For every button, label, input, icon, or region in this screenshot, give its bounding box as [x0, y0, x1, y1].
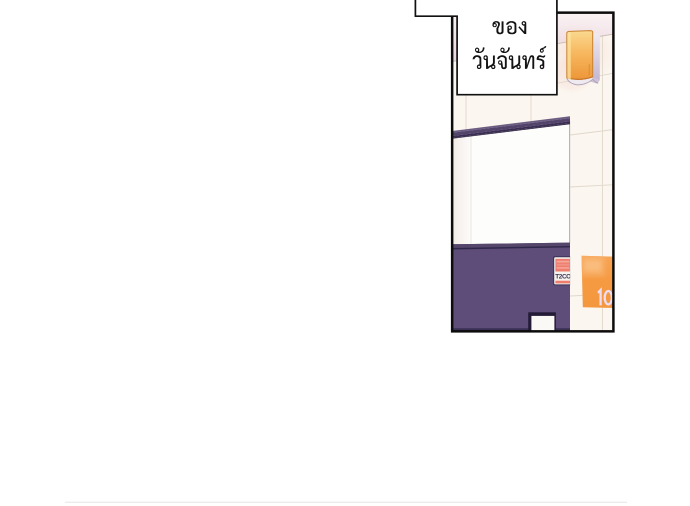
- svg-text:T2CO: T2CO: [555, 274, 571, 281]
